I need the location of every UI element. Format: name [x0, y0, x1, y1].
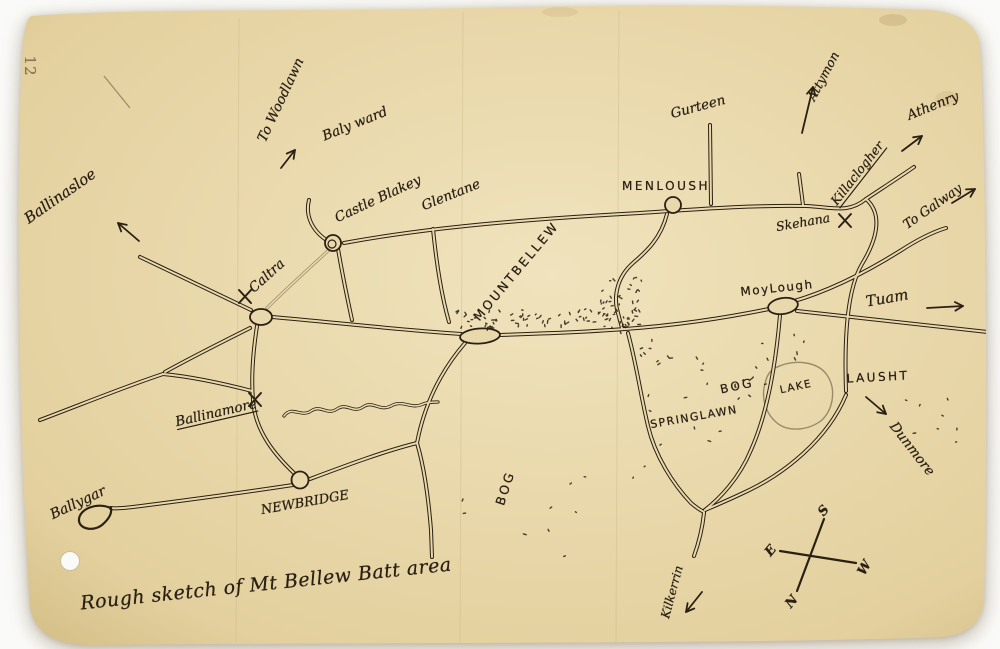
map-sketch-svg — [0, 0, 1000, 649]
scanned-hand-drawn-map: 12 Ballinasloe To Woodlawn Baly ward Cas… — [0, 0, 1000, 649]
junction-menlough — [665, 197, 681, 213]
junction-castleblakeney — [325, 235, 341, 251]
junction-newbridge — [292, 472, 309, 489]
hole-punch — [61, 552, 80, 571]
junction-caltra — [250, 309, 272, 325]
paper-sheet — [19, 6, 986, 645]
